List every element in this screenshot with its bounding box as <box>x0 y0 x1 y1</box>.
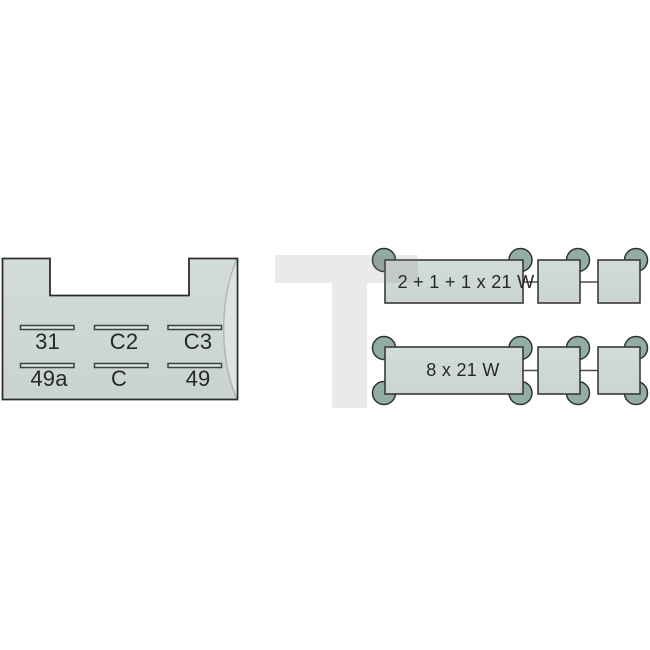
pin-label-31: 31 <box>21 331 75 353</box>
load-rating-label-top: 2 + 1 + 1 x 21 W <box>396 271 536 293</box>
pin-label-c2: C2 <box>97 331 151 353</box>
pin-label-49a: 49a <box>22 368 76 390</box>
pin-label-c: C <box>92 368 146 390</box>
relay-diagram-graphic <box>0 0 650 650</box>
lamp-box <box>598 347 640 394</box>
lamp-box <box>538 260 580 303</box>
lamp-box <box>538 347 580 394</box>
pin-label-49: 49 <box>171 368 225 390</box>
diagram-canvas: 31 C2 C3 49a C 49 2 + 1 + 1 x 21 W 8 x 2… <box>0 0 650 650</box>
lamp-box <box>598 260 640 303</box>
pin-label-c3: C3 <box>171 331 225 353</box>
load-rating-label-bottom: 8 x 21 W <box>393 359 533 381</box>
